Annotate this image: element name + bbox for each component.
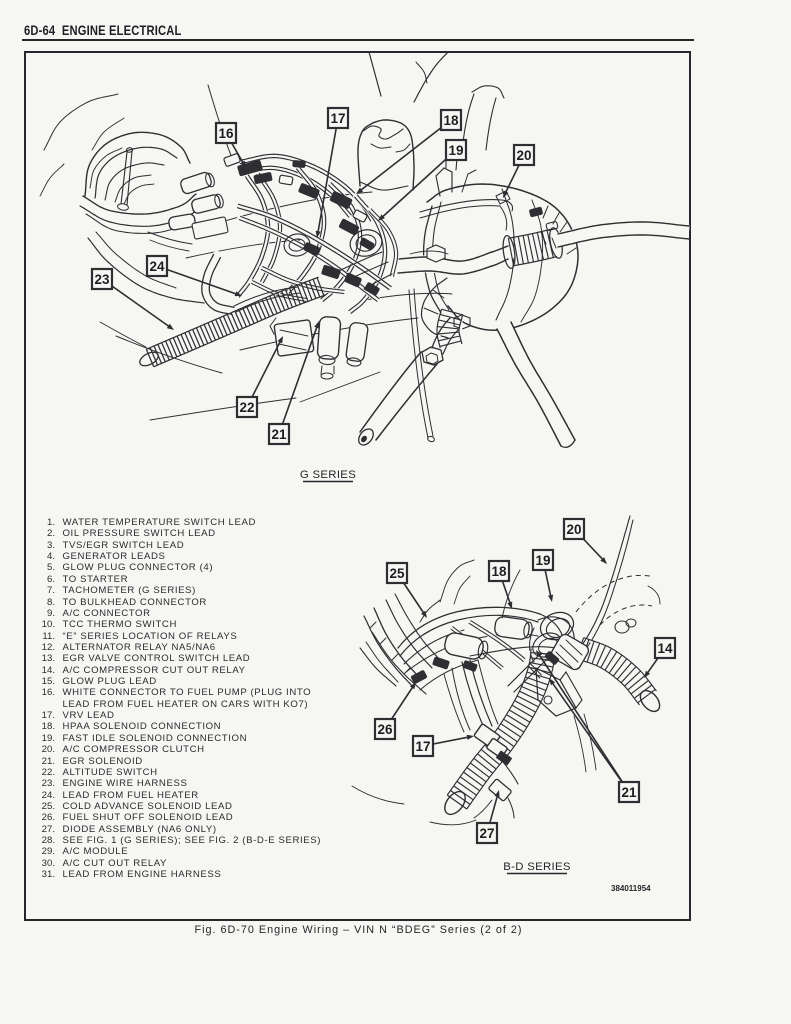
svg-text:18: 18	[491, 564, 507, 579]
svg-text:17: 17	[330, 111, 345, 126]
svg-text:27: 27	[479, 826, 494, 841]
svg-text:G SERIES: G SERIES	[300, 469, 356, 481]
svg-text:20: 20	[516, 148, 531, 163]
svg-text:18: 18	[443, 113, 459, 128]
svg-text:20: 20	[566, 522, 581, 537]
svg-text:22: 22	[239, 400, 254, 415]
svg-text:B-D SERIES: B-D SERIES	[503, 861, 571, 873]
svg-text:26: 26	[377, 722, 393, 737]
svg-text:384011954: 384011954	[611, 884, 651, 893]
svg-text:16: 16	[218, 126, 234, 141]
svg-text:24: 24	[149, 259, 165, 274]
svg-text:14: 14	[657, 641, 673, 656]
svg-text:23: 23	[94, 272, 110, 287]
svg-text:21: 21	[271, 427, 287, 442]
svg-text:19: 19	[535, 553, 550, 568]
svg-text:19: 19	[448, 143, 463, 158]
svg-text:21: 21	[621, 785, 637, 800]
svg-text:17: 17	[415, 739, 430, 754]
svg-text:25: 25	[389, 566, 405, 581]
